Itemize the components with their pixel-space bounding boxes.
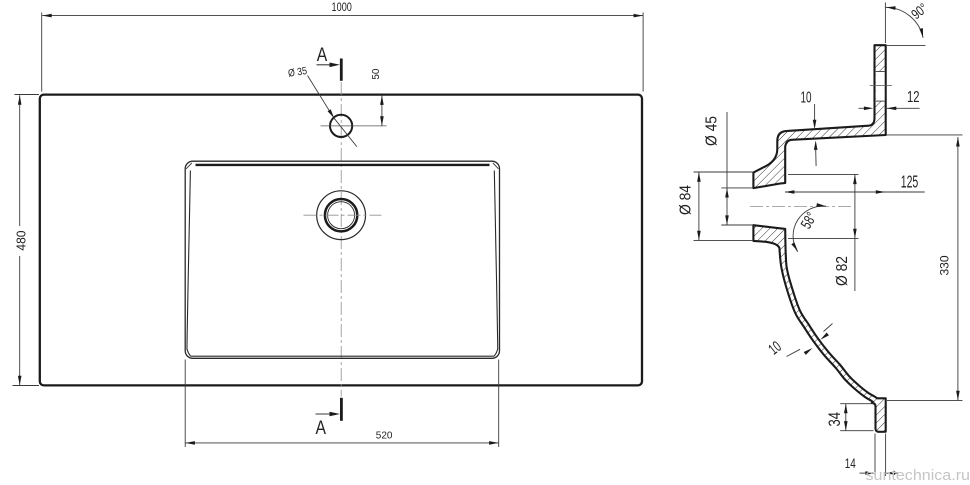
svg-text:125: 125 <box>901 171 919 191</box>
svg-text:suntechnica.ru: suntechnica.ru <box>866 468 970 484</box>
svg-text:Ø 82: Ø 82 <box>834 256 851 286</box>
svg-text:480: 480 <box>14 231 29 251</box>
svg-text:50: 50 <box>370 68 382 79</box>
svg-text:34: 34 <box>826 412 844 427</box>
svg-text:Ø 45: Ø 45 <box>704 116 721 146</box>
svg-text:10: 10 <box>801 90 812 107</box>
svg-text:520: 520 <box>376 430 393 442</box>
svg-text:A: A <box>315 418 326 439</box>
svg-text:330: 330 <box>938 255 952 275</box>
svg-text:14: 14 <box>845 455 856 471</box>
svg-text:A: A <box>317 45 328 66</box>
svg-text:12: 12 <box>907 89 920 106</box>
svg-text:1000: 1000 <box>332 0 353 14</box>
svg-text:Ø 84: Ø 84 <box>678 185 695 215</box>
